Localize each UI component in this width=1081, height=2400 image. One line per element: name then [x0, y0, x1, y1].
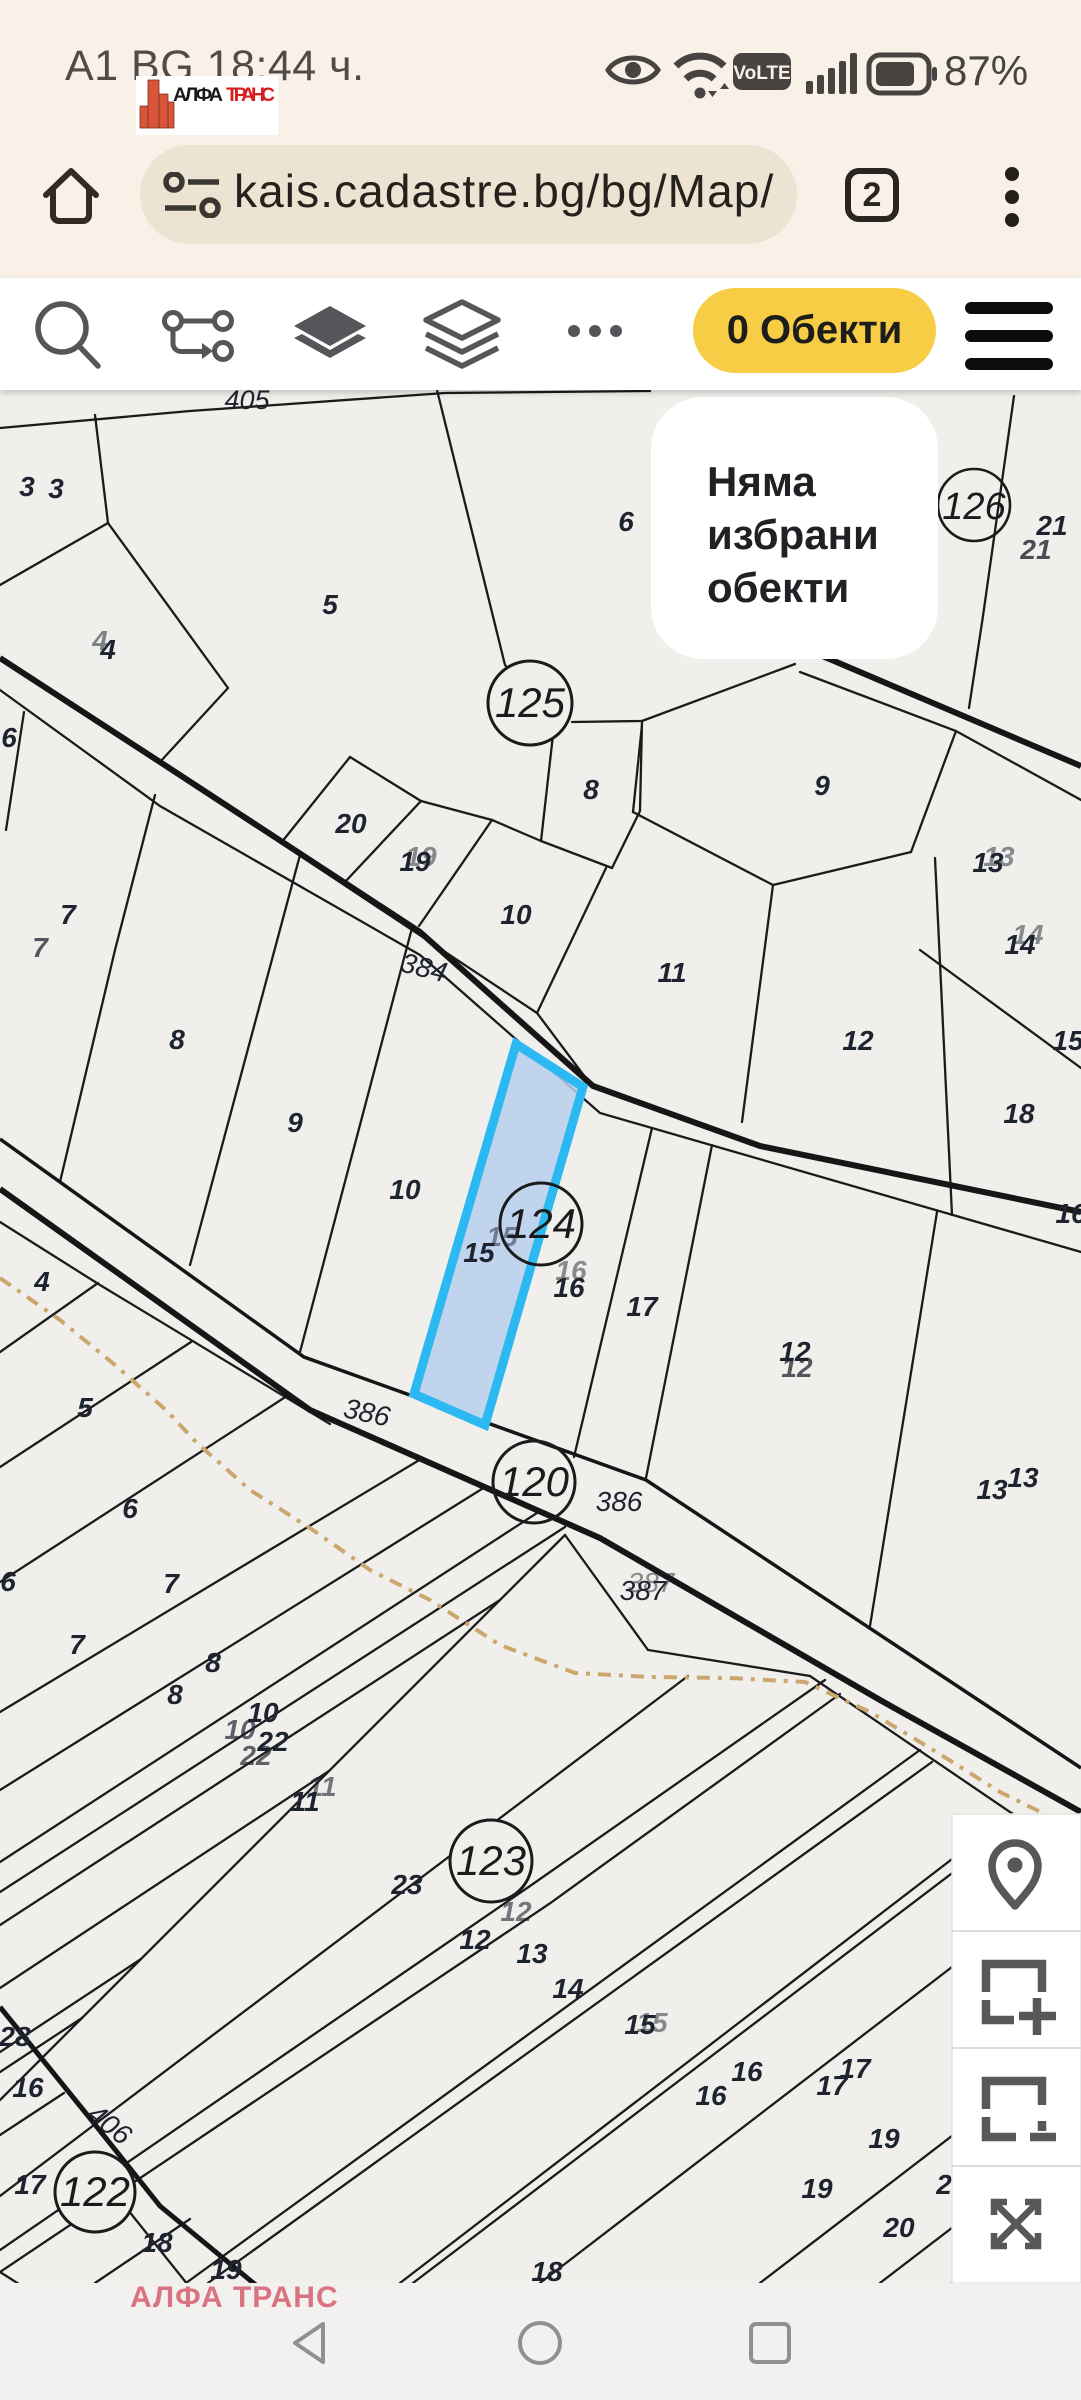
svg-text:13: 13 [1007, 1462, 1039, 1493]
svg-text:3: 3 [19, 471, 35, 502]
svg-text:9: 9 [287, 1107, 303, 1138]
svg-text:19: 19 [868, 2123, 900, 2154]
svg-text:12: 12 [781, 1352, 813, 1383]
svg-text:3: 3 [48, 473, 64, 504]
svg-text:13: 13 [516, 1938, 548, 1969]
svg-text:122: 122 [60, 2168, 130, 2215]
svg-text:АЛФА: АЛФА [173, 84, 223, 106]
svg-text:387: 387 [628, 1567, 676, 1598]
svg-text:7: 7 [60, 899, 77, 930]
svg-text:6: 6 [1, 722, 17, 753]
svg-text:8: 8 [167, 1679, 183, 1710]
svg-text:VoLTE: VoLTE [733, 63, 790, 84]
svg-text:18: 18 [1003, 1098, 1035, 1129]
svg-text:20: 20 [334, 808, 367, 839]
svg-text:10: 10 [389, 1174, 421, 1205]
svg-text:избрани: избрани [707, 511, 879, 558]
svg-text:8: 8 [583, 774, 599, 805]
svg-text:10: 10 [500, 899, 532, 930]
svg-text:8: 8 [205, 1647, 221, 1678]
svg-text:5: 5 [322, 589, 338, 620]
svg-text:16: 16 [12, 2072, 44, 2103]
svg-text:9: 9 [814, 770, 830, 801]
svg-text:120: 120 [499, 1458, 570, 1505]
svg-text:386: 386 [596, 1486, 643, 1517]
svg-text:87%: 87% [944, 47, 1028, 94]
svg-text:7: 7 [69, 1629, 86, 1660]
svg-text:22: 22 [239, 1740, 272, 1771]
svg-text:17: 17 [14, 2169, 47, 2200]
svg-text:28: 28 [0, 2021, 31, 2052]
svg-text:5: 5 [77, 1392, 93, 1423]
svg-text:4: 4 [99, 634, 116, 665]
svg-text:4: 4 [33, 1266, 50, 1297]
svg-text:16: 16 [1055, 1198, 1081, 1229]
svg-text:21: 21 [1019, 534, 1051, 565]
svg-text:19: 19 [801, 2173, 833, 2204]
svg-text:7: 7 [32, 932, 49, 963]
svg-text:ТРАНС: ТРАНС [226, 84, 275, 106]
svg-text:6: 6 [122, 1493, 138, 1524]
svg-text:Няма: Няма [707, 458, 816, 505]
svg-text:15: 15 [636, 2007, 668, 2038]
svg-text:15: 15 [1052, 1025, 1081, 1056]
svg-text:123: 123 [456, 1837, 526, 1884]
svg-text:19: 19 [399, 846, 431, 877]
svg-text:8: 8 [169, 1024, 185, 1055]
svg-text:14: 14 [1012, 919, 1044, 950]
svg-text:17: 17 [626, 1291, 659, 1322]
svg-text:13: 13 [976, 1474, 1008, 1505]
svg-text:11: 11 [290, 1786, 319, 1817]
svg-text:16: 16 [731, 2056, 763, 2087]
svg-text:12: 12 [500, 1896, 532, 1927]
svg-text:13: 13 [983, 841, 1015, 872]
svg-text:11: 11 [657, 957, 686, 988]
svg-text:125: 125 [495, 679, 566, 726]
svg-text:20: 20 [882, 2212, 915, 2243]
svg-text:16: 16 [553, 1272, 585, 1303]
svg-text:126: 126 [942, 486, 1006, 528]
svg-text:6: 6 [0, 1566, 16, 1597]
svg-text:16: 16 [695, 2080, 727, 2111]
svg-text:6: 6 [618, 506, 634, 537]
svg-text:7: 7 [163, 1568, 180, 1599]
svg-text:18: 18 [141, 2227, 173, 2258]
svg-text:14: 14 [552, 1973, 584, 2004]
svg-text:17: 17 [816, 2070, 849, 2101]
svg-text:12: 12 [842, 1025, 874, 1056]
svg-text:12: 12 [459, 1924, 491, 1955]
svg-text:15: 15 [486, 1221, 518, 1252]
svg-text:2: 2 [935, 2169, 952, 2200]
svg-text:23: 23 [390, 1869, 423, 1900]
svg-text:обекти: обекти [707, 564, 849, 611]
